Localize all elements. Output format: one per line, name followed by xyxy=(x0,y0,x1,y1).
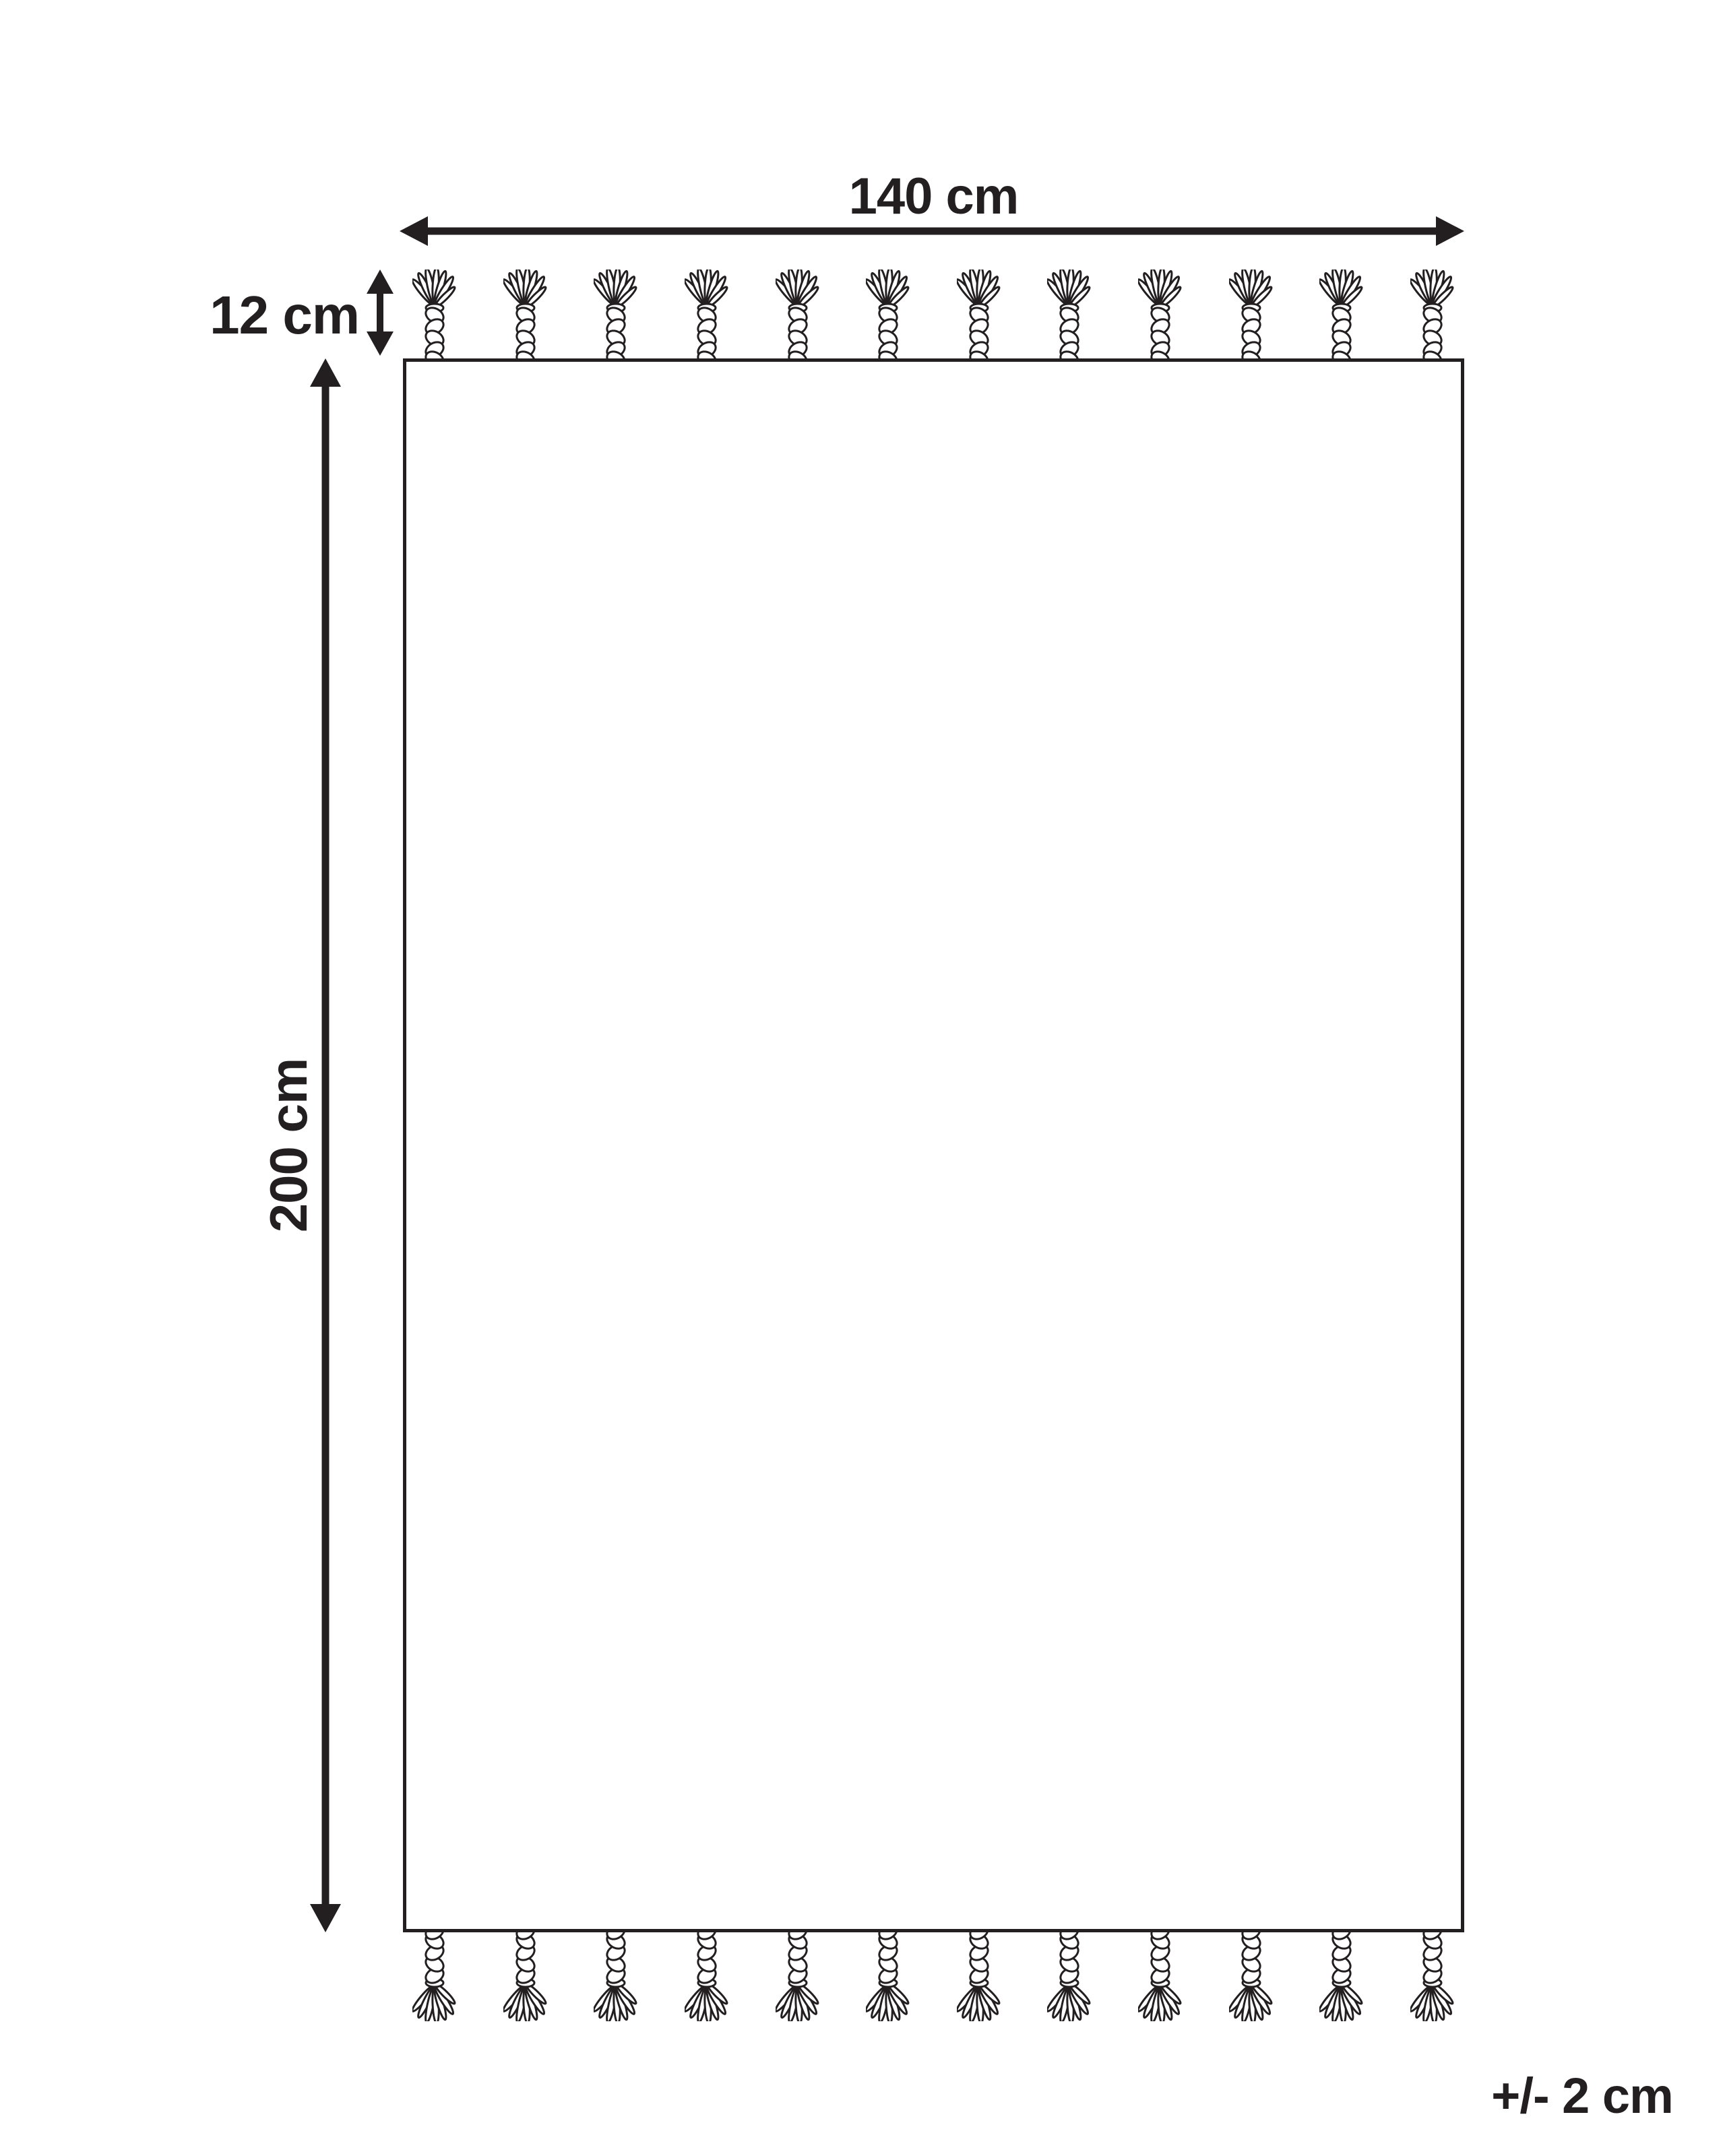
tassel-icon xyxy=(776,269,820,358)
tassel-icon xyxy=(594,1932,638,2021)
width-label: 140 cm xyxy=(403,168,1464,225)
height-label: 200 cm xyxy=(261,1011,315,1280)
tassel-icon xyxy=(1319,1932,1364,2021)
tassel-length-arrow xyxy=(365,269,396,356)
tassel-icon xyxy=(412,1932,457,2021)
dimension-diagram: 140 cm 12 cm 200 cm +/- 2 cm xyxy=(0,0,1725,2156)
tassel-icon xyxy=(776,1932,820,2021)
tassel-icon xyxy=(1138,269,1183,358)
tassel-icon xyxy=(1229,269,1274,358)
tolerance-label: +/- 2 cm xyxy=(1447,2068,1717,2123)
tassel-icon xyxy=(1229,1932,1274,2021)
tassel-icon xyxy=(1047,269,1092,358)
tassel-row-bottom xyxy=(403,1932,1464,2021)
tassel-icon xyxy=(1410,269,1455,358)
tassel-icon xyxy=(957,269,1001,358)
tassel-row-top xyxy=(403,269,1464,358)
tassel-length-label: 12 cm xyxy=(157,287,359,344)
tassel-icon xyxy=(412,269,457,358)
tassel-icon xyxy=(1138,1932,1183,2021)
tassel-icon xyxy=(503,1932,548,2021)
tassel-icon xyxy=(957,1932,1001,2021)
tassel-icon xyxy=(685,269,729,358)
tassel-icon xyxy=(866,1932,910,2021)
tassel-icon xyxy=(503,269,548,358)
tassel-icon xyxy=(866,269,910,358)
tassel-icon xyxy=(1410,1932,1455,2021)
tassel-icon xyxy=(1319,269,1364,358)
tassel-icon xyxy=(1047,1932,1092,2021)
tassel-icon xyxy=(685,1932,729,2021)
rug-outline xyxy=(403,358,1464,1932)
tassel-icon xyxy=(594,269,638,358)
